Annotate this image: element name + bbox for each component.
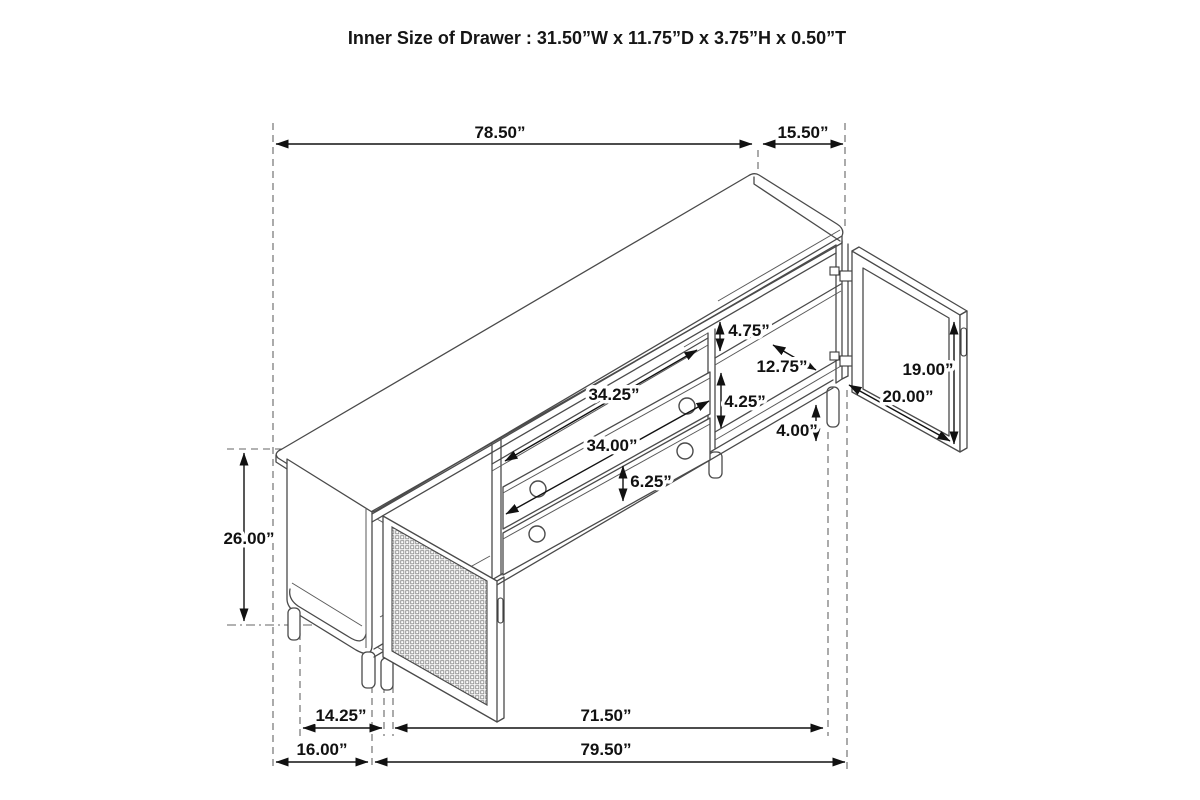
cane-door-handle (498, 598, 503, 623)
dim-label-base-side-inner-depth: 14.25” (315, 706, 366, 725)
dim-label-base-front-width: 79.50” (580, 740, 631, 759)
dim-label-base-side-depth: 16.00” (296, 740, 347, 759)
cane-door (377, 516, 504, 722)
leg-front-left-corner (362, 652, 375, 688)
dim-label-drawer-front-width: 34.00” (586, 436, 637, 455)
dim-label-top-depth: 15.50” (777, 123, 828, 142)
drawer-knob (530, 481, 546, 497)
dim-label-leg-height: 4.00” (776, 421, 818, 440)
leg-front-right (827, 387, 839, 427)
dim-label-door-width: 20.00” (882, 387, 933, 406)
dim-label-overall-height: 26.00” (223, 529, 274, 548)
drawer-knob (679, 398, 695, 414)
dim-label-top-length: 78.50” (474, 123, 525, 142)
diagram-canvas: 78.50” 15.50” 26.00” 4.75” 12.75” 4.25” … (0, 0, 1200, 800)
dim-label-upper-shelf-gap: 4.75” (728, 321, 770, 340)
diagram-title: Inner Size of Drawer : 31.50”W x 11.75”D… (348, 28, 846, 48)
drawer-knob (529, 526, 545, 542)
furniture-dimension-diagram: 78.50” 15.50” 26.00” 4.75” 12.75” 4.25” … (0, 0, 1200, 800)
dim-label-door-height: 19.00” (902, 360, 953, 379)
leg-front-left (381, 658, 393, 690)
dim-label-shelf-spacing: 4.25” (724, 392, 766, 411)
leg-front-middle (709, 452, 722, 478)
glass-door (830, 247, 967, 452)
cane-mesh-panel (392, 527, 487, 705)
dim-label-compartment-inner-depth: 12.75” (756, 357, 807, 376)
leg-back-left (288, 608, 300, 640)
dim-label-drawer-opening-width: 34.25” (588, 385, 639, 404)
dim-label-base-front-inner-width: 71.50” (580, 706, 631, 725)
drawer-knob (677, 443, 693, 459)
glass-door-handle (961, 328, 967, 356)
dim-label-drawer-front-height: 6.25” (630, 472, 672, 491)
